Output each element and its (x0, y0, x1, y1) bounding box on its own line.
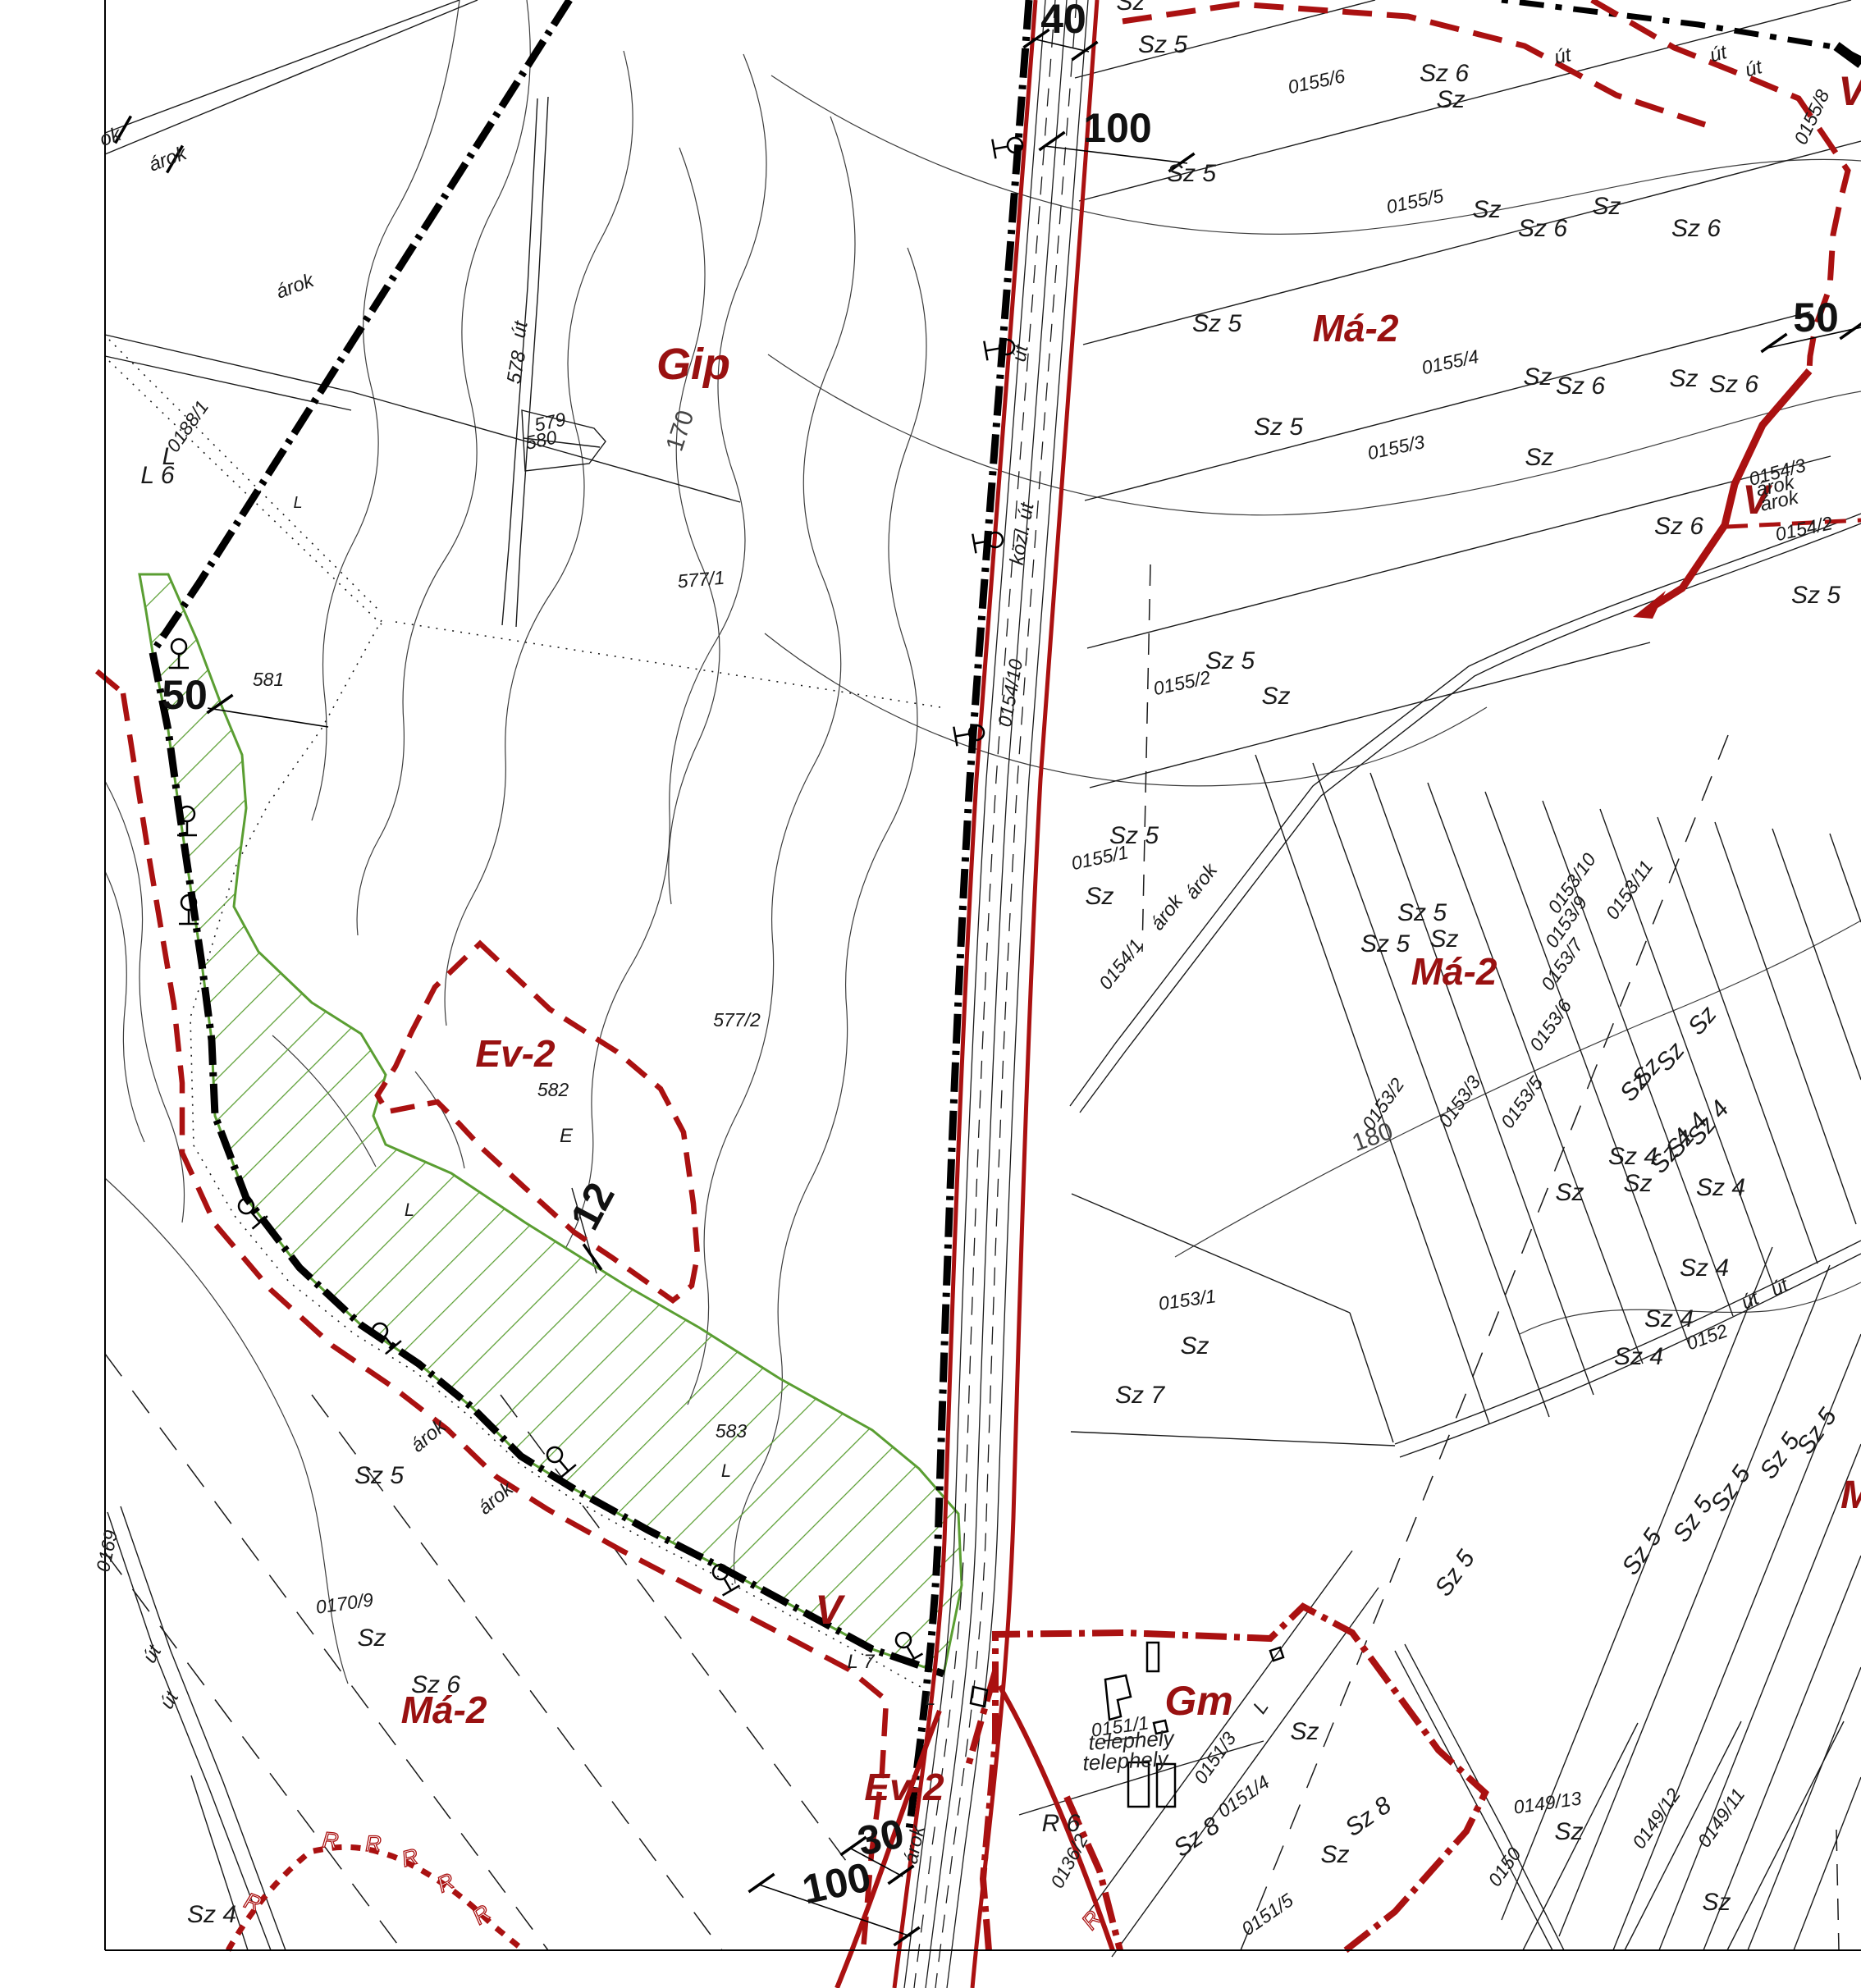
zone-label: Ev-2 (475, 1032, 556, 1075)
road-label: út (508, 318, 533, 340)
use-label: Sz 8 (1340, 1791, 1396, 1842)
use-label: Sz 8 (1168, 1812, 1224, 1862)
zone-label: Má-2 (1411, 950, 1497, 993)
zone-label: M (1840, 1474, 1861, 1517)
use-label: L (1249, 1696, 1273, 1717)
zoning-map: GipMá-2Má-2Má-2Ev-2Ev-2GmVVVM40100505012… (0, 0, 1861, 1988)
road-red-left (894, 0, 1036, 1988)
use-label: Sz 5 (1254, 414, 1303, 441)
use-label: Sz 5 (1109, 822, 1159, 849)
road-label: út (1743, 56, 1766, 82)
parcel-label: 0149/13 (1512, 1787, 1583, 1817)
rletter-label: R (322, 1827, 340, 1853)
use-label: Sz (1472, 196, 1501, 223)
road-label: árok (273, 269, 318, 304)
use-label: L (721, 1460, 731, 1481)
use-label: Sz (1683, 1001, 1722, 1040)
zone-label: Gip (656, 340, 730, 389)
use-label: Sz 5 (1192, 310, 1241, 337)
use-label: Sz 6 (1671, 215, 1721, 242)
use-label: Sz 5 (1360, 930, 1410, 957)
use-label: L (926, 1689, 935, 1709)
use-label: L (405, 1200, 414, 1220)
zone-label: Má-2 (1313, 307, 1399, 350)
dim-label: 50 (162, 672, 208, 718)
parcel-label: 0155/5 (1384, 185, 1445, 217)
road-label: út (1552, 43, 1574, 69)
use-label: Sz 4 (1608, 1143, 1658, 1170)
rletter-label: R (241, 1888, 265, 1917)
zone-label: Ev-2 (864, 1766, 944, 1808)
use-label: Sz 5 (1138, 31, 1187, 58)
rletter-label: R (1077, 1906, 1106, 1934)
use-label: Sz (1555, 1179, 1584, 1206)
use-label: E (560, 1125, 574, 1147)
road-label: 578 (503, 349, 531, 386)
use-label: L (293, 494, 302, 512)
dim-label: 50 (1793, 295, 1839, 340)
use-label: R 6 (1042, 1810, 1081, 1837)
rletter-label: R (399, 1844, 421, 1871)
red-regulation-lines (97, 0, 1861, 1988)
parcel-label: 577/2 (713, 1009, 761, 1031)
parcel-label: 0153/11 (1601, 857, 1657, 924)
use-label: Sz (1290, 1718, 1319, 1745)
use-label: Sz 5 (1429, 1545, 1480, 1601)
use-label: Sz 7 (1115, 1382, 1165, 1409)
use-label: Sz 5 (1205, 647, 1255, 674)
use-label: Sz (1702, 1889, 1731, 1916)
tele-label: telephely (1082, 1746, 1171, 1775)
use-label: Sz 6 (1518, 215, 1567, 242)
parcel-label: 0153/6 (1525, 995, 1576, 1055)
dim-label: 100 (1083, 105, 1151, 151)
dimension-lines (208, 39, 1861, 1936)
parcel-label: 0151/3 (1190, 1728, 1241, 1788)
rletter-label: R (365, 1831, 382, 1856)
gm-red-dashdot (983, 1606, 1485, 1950)
parcel-label: 581 (253, 669, 284, 690)
use-label: Sz (1320, 1841, 1349, 1868)
use-label: Sz 5 (1616, 1524, 1667, 1579)
use-label: Sz (1669, 365, 1698, 392)
black-boundary-chains (153, 0, 1861, 1830)
use-label: Sz 5 (1397, 899, 1447, 926)
use-label: L 7 (848, 1651, 876, 1673)
use-label: Sz (1592, 193, 1621, 220)
r-dotted-line (228, 1847, 524, 1950)
topright-red-dashed (1123, 4, 1705, 125)
parcel-label: 583 (716, 1420, 748, 1442)
map-frame (105, 0, 1861, 1950)
use-label: Sz (1554, 1818, 1583, 1845)
use-label: Sz 4 (1644, 1305, 1694, 1332)
parcel-label: 0169 (92, 1528, 121, 1574)
use-label: Sz (1429, 925, 1458, 953)
use-label: Sz 4 (1696, 1174, 1745, 1201)
parcel-label: 0155/4 (1420, 345, 1480, 378)
road-label: árok (900, 1822, 930, 1866)
use-label: Sz (1623, 1170, 1652, 1197)
road-label: árok (1146, 889, 1188, 935)
zone-label: V (1838, 68, 1861, 114)
use-label: Sz (1116, 0, 1145, 16)
zoning-map-canvas: GipMá-2Má-2Má-2Ev-2Ev-2GmVVVM40100505012… (0, 0, 1861, 1988)
use-label: Sz 6 (1420, 60, 1469, 87)
use-label: Sz 5 (1167, 160, 1216, 187)
zone-label: V (815, 1587, 845, 1633)
parcel-label: 0153/5 (1497, 1072, 1548, 1132)
dim-label: 100 (798, 1853, 875, 1913)
parcel-label: 0151/4 (1214, 1771, 1273, 1822)
parcel-label: 0154/1 (1095, 935, 1147, 993)
use-label: Sz 4 (1614, 1343, 1663, 1370)
road-label: út (1767, 1273, 1793, 1300)
road-label: út (1008, 342, 1033, 363)
clabel-label: 170 (661, 407, 700, 455)
parcel-label: 0153/3 (1434, 1072, 1485, 1131)
parcel-label: 0136/2 (1046, 1830, 1092, 1892)
use-label: Sz (1180, 1332, 1209, 1360)
road-label: árok (407, 1414, 452, 1457)
use-label: Sz (357, 1625, 386, 1652)
parcel-label: 0155/2 (1151, 666, 1212, 699)
parcel-label: 0155/6 (1286, 65, 1347, 98)
parcel-label: 0170/9 (314, 1588, 374, 1618)
use-label: L 6 (140, 462, 174, 489)
use-label: Sz (1436, 86, 1465, 113)
use-label: Sz 6 (1556, 372, 1605, 400)
road-label: árok (1181, 858, 1223, 903)
zone-label: Gm (1164, 1678, 1232, 1724)
use-label: Sz 6 (411, 1671, 460, 1698)
road-label: közl. út (1006, 500, 1039, 567)
parcel-label: 0153/1 (1157, 1285, 1217, 1314)
use-label: Sz (1261, 683, 1290, 710)
parcel-label: 0150 (1484, 1844, 1525, 1890)
use-label: Sz 5 (354, 1462, 404, 1489)
parcel-label: 0154/2 (1773, 512, 1834, 545)
use-label: Sz 4 (187, 1901, 236, 1928)
use-label: Sz 4 (1680, 1254, 1729, 1282)
use-label: Sz (1523, 363, 1552, 391)
use-label: Sz (1525, 444, 1553, 471)
parcel-label: 577/1 (676, 567, 725, 592)
parcel-label: 582 (537, 1079, 569, 1100)
parcel-lines (105, 0, 1861, 1957)
parcel-label: 0155/3 (1365, 431, 1426, 464)
use-label: Sz 6 (1654, 513, 1703, 540)
use-label: Sz 5 (1791, 582, 1840, 609)
parcel-label: 0151/5 (1237, 1890, 1297, 1940)
dim-label: 40 (1040, 0, 1086, 42)
use-label: Sz 6 (1709, 371, 1758, 398)
road-label: árok (474, 1477, 519, 1520)
use-label: Sz (1085, 883, 1113, 910)
